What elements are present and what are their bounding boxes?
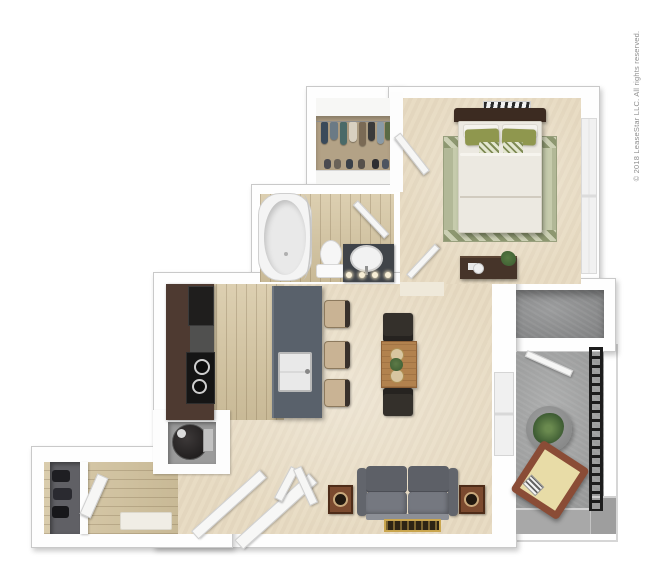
bathroom-vanity — [343, 244, 394, 282]
bedroom-window — [581, 118, 597, 274]
island-faucet — [305, 369, 310, 374]
vanity-light — [385, 272, 391, 278]
chair-book — [522, 474, 544, 496]
sofa — [357, 466, 458, 520]
toilet-tank — [316, 264, 345, 278]
hanging-clothes — [321, 122, 328, 144]
bed — [458, 121, 542, 233]
entry-closet-clothes — [52, 506, 69, 518]
vanity-light — [359, 272, 365, 278]
vanity-light — [346, 272, 352, 278]
bedroom-doorway-threshold — [400, 282, 444, 296]
hanging-clothes — [349, 122, 357, 142]
sofa-seat-cushion — [366, 492, 407, 516]
shoes — [358, 159, 365, 169]
shoes — [382, 159, 389, 169]
place-setting — [390, 369, 404, 383]
desk-stool — [473, 263, 484, 274]
vanity-faucet — [365, 266, 368, 275]
bar-stool — [324, 300, 350, 328]
speaker-cone — [464, 492, 479, 507]
speaker — [459, 485, 485, 514]
water-heater-pipe — [203, 428, 214, 452]
shoes — [372, 159, 379, 169]
entry-closet-floor — [50, 462, 82, 534]
closet-shelf-bottom — [316, 170, 392, 184]
burner — [192, 379, 207, 394]
shoes — [324, 159, 331, 169]
duvet-fold — [460, 153, 541, 156]
sofa-back-cushion — [366, 466, 407, 493]
shoes — [334, 159, 341, 169]
entry-closet-clothes — [53, 488, 72, 500]
bed-headboard — [454, 108, 546, 122]
refrigerator — [188, 286, 214, 326]
shoes — [346, 159, 353, 169]
dining-table — [381, 341, 417, 388]
kitchen-counter-section — [190, 326, 214, 354]
storage-closet-floor — [516, 290, 604, 338]
sofa-seat-cushion — [408, 492, 449, 516]
bar-stool — [324, 379, 350, 407]
desk-plant — [501, 251, 516, 266]
patio-sliding-door — [494, 372, 514, 456]
hanging-clothes — [359, 122, 366, 146]
burner — [194, 359, 210, 375]
sofa-arm-right — [448, 468, 458, 516]
dining-chair — [383, 388, 413, 416]
closet-back-wall — [316, 116, 392, 172]
water-heater-cap — [177, 429, 186, 438]
bathtub-drain — [284, 252, 288, 256]
vanity-light — [372, 272, 378, 278]
dining-chair — [383, 313, 413, 342]
speaker-cone — [333, 492, 348, 507]
hanging-clothes — [368, 122, 375, 141]
hanging-clothes — [377, 122, 384, 144]
copyright-watermark: © 2018 LeaseStar LLC. All rights reserve… — [632, 16, 644, 196]
entry-doormat — [120, 512, 172, 530]
hanging-clothes — [330, 122, 338, 140]
bar-stool — [324, 341, 350, 369]
sofa-back-cushion — [408, 466, 449, 493]
patio-railing — [589, 347, 603, 511]
centerpiece-plant — [390, 358, 403, 371]
duvet-fold — [460, 196, 541, 198]
floor-plan: © 2018 LeaseStar LLC. All rights reserve… — [0, 0, 650, 585]
accent-mat — [384, 519, 441, 532]
entry-closet-clothes — [52, 470, 70, 482]
speaker — [328, 485, 353, 514]
hanging-clothes — [340, 122, 347, 145]
cooktop — [186, 352, 215, 404]
